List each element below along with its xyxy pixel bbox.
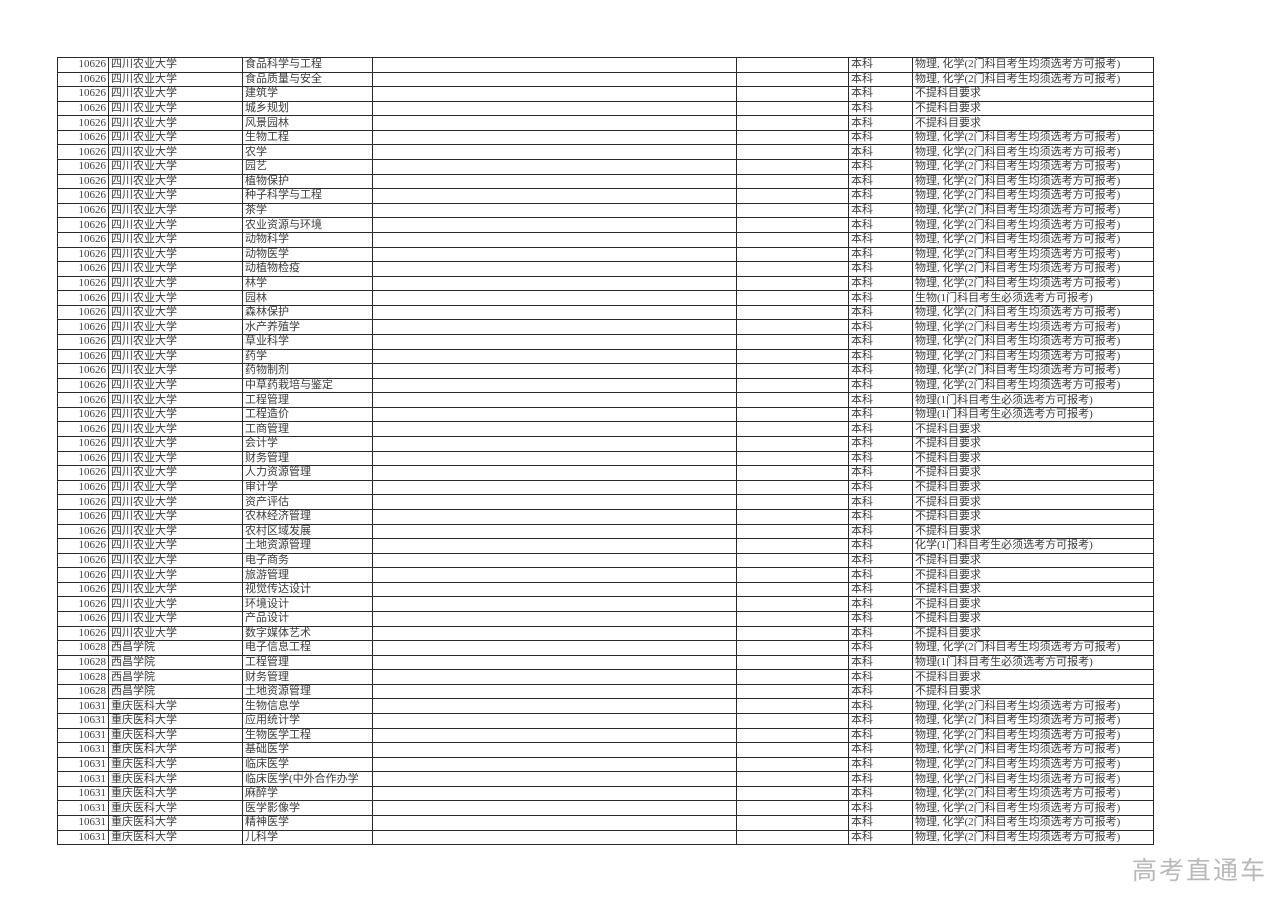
empty-cell: [373, 407, 737, 422]
university-name-cell: 四川农业大学: [109, 276, 243, 291]
education-level-cell: 本科: [849, 714, 913, 729]
university-name-cell: 四川农业大学: [109, 174, 243, 189]
school-code-cell: 10626: [58, 597, 109, 612]
subject-requirement-cell: 物理, 化学(2门科目考生均须选考方可报考): [913, 174, 1154, 189]
education-level-cell: 本科: [849, 728, 913, 743]
empty-cell: [737, 816, 849, 831]
education-level-cell: 本科: [849, 772, 913, 787]
subject-requirement-cell: 物理, 化学(2门科目考生均须选考方可报考): [913, 816, 1154, 831]
school-code-cell: 10626: [58, 72, 109, 87]
empty-cell: [737, 772, 849, 787]
table-row: 10631重庆医科大学临床医学(中外合作办学本科物理, 化学(2门科目考生均须选…: [58, 772, 1154, 787]
empty-cell: [373, 495, 737, 510]
table-row: 10626四川农业大学园林本科生物(1门科目考生必须选考方可报考): [58, 291, 1154, 306]
table-row: 10626四川农业大学财务管理本科不提科目要求: [58, 451, 1154, 466]
subject-requirement-cell: 物理, 化学(2门科目考生均须选考方可报考): [913, 830, 1154, 845]
university-name-cell: 四川农业大学: [109, 539, 243, 554]
admission-subject-requirements-table: 10626四川农业大学食品科学与工程本科物理, 化学(2门科目考生均须选考方可报…: [57, 57, 1154, 845]
major-name-cell: 临床医学(中外合作办学: [243, 772, 373, 787]
school-code-cell: 10626: [58, 495, 109, 510]
subject-requirement-cell: 物理, 化学(2门科目考生均须选考方可报考): [913, 743, 1154, 758]
empty-cell: [737, 72, 849, 87]
subject-requirement-cell: 不提科目要求: [913, 670, 1154, 685]
university-name-cell: 四川农业大学: [109, 451, 243, 466]
table-row: 10626四川农业大学工商管理本科不提科目要求: [58, 422, 1154, 437]
table-row: 10631重庆医科大学儿科学本科物理, 化学(2门科目考生均须选考方可报考): [58, 830, 1154, 845]
education-level-cell: 本科: [849, 218, 913, 233]
subject-requirement-cell: 物理, 化学(2门科目考生均须选考方可报考): [913, 189, 1154, 204]
university-name-cell: 四川农业大学: [109, 422, 243, 437]
major-name-cell: 临床医学: [243, 757, 373, 772]
university-name-cell: 西昌学院: [109, 641, 243, 656]
university-name-cell: 四川农业大学: [109, 611, 243, 626]
major-name-cell: 中草药栽培与鉴定: [243, 378, 373, 393]
university-name-cell: 四川农业大学: [109, 262, 243, 277]
table-row: 10631重庆医科大学精神医学本科物理, 化学(2门科目考生均须选考方可报考): [58, 816, 1154, 831]
major-name-cell: 人力资源管理: [243, 466, 373, 481]
empty-cell: [737, 116, 849, 131]
education-level-cell: 本科: [849, 568, 913, 583]
university-name-cell: 四川农业大学: [109, 232, 243, 247]
subject-requirement-cell: 物理, 化学(2门科目考生均须选考方可报考): [913, 262, 1154, 277]
school-code-cell: 10626: [58, 582, 109, 597]
empty-cell: [737, 466, 849, 481]
subject-requirement-cell: 不提科目要求: [913, 553, 1154, 568]
major-name-cell: 城乡规划: [243, 101, 373, 116]
table-row: 10626四川农业大学农学本科物理, 化学(2门科目考生均须选考方可报考): [58, 145, 1154, 160]
table-row: 10626四川农业大学农业资源与环境本科物理, 化学(2门科目考生均须选考方可报…: [58, 218, 1154, 233]
university-name-cell: 四川农业大学: [109, 305, 243, 320]
empty-cell: [373, 276, 737, 291]
empty-cell: [737, 801, 849, 816]
education-level-cell: 本科: [849, 364, 913, 379]
school-code-cell: 10626: [58, 116, 109, 131]
empty-cell: [737, 626, 849, 641]
empty-cell: [737, 174, 849, 189]
table-row: 10626四川农业大学旅游管理本科不提科目要求: [58, 568, 1154, 583]
university-name-cell: 四川农业大学: [109, 466, 243, 481]
university-name-cell: 重庆医科大学: [109, 772, 243, 787]
major-name-cell: 生物医学工程: [243, 728, 373, 743]
empty-cell: [737, 437, 849, 452]
major-name-cell: 基础医学: [243, 743, 373, 758]
empty-cell: [737, 670, 849, 685]
school-code-cell: 10626: [58, 247, 109, 262]
education-level-cell: 本科: [849, 305, 913, 320]
subject-requirement-cell: 不提科目要求: [913, 626, 1154, 641]
university-name-cell: 西昌学院: [109, 670, 243, 685]
empty-cell: [737, 539, 849, 554]
table-row: 10626四川农业大学城乡规划本科不提科目要求: [58, 101, 1154, 116]
empty-cell: [373, 539, 737, 554]
empty-cell: [373, 757, 737, 772]
subject-requirement-cell: 不提科目要求: [913, 597, 1154, 612]
major-name-cell: 草业科学: [243, 334, 373, 349]
major-name-cell: 动物医学: [243, 247, 373, 262]
subject-requirement-cell: 不提科目要求: [913, 582, 1154, 597]
empty-cell: [373, 160, 737, 175]
table-row: 10628西昌学院财务管理本科不提科目要求: [58, 670, 1154, 685]
document-sheet: 10626四川农业大学食品科学与工程本科物理, 化学(2门科目考生均须选考方可报…: [0, 0, 1280, 905]
subject-requirement-cell: 化学(1门科目考生必须选考方可报考): [913, 539, 1154, 554]
major-name-cell: 土地资源管理: [243, 684, 373, 699]
empty-cell: [373, 116, 737, 131]
empty-cell: [373, 684, 737, 699]
university-name-cell: 四川农业大学: [109, 189, 243, 204]
school-code-cell: 10626: [58, 378, 109, 393]
empty-cell: [373, 553, 737, 568]
major-name-cell: 审计学: [243, 480, 373, 495]
education-level-cell: 本科: [849, 378, 913, 393]
major-name-cell: 电子商务: [243, 553, 373, 568]
subject-requirement-cell: 物理, 化学(2门科目考生均须选考方可报考): [913, 72, 1154, 87]
school-code-cell: 10626: [58, 407, 109, 422]
empty-cell: [737, 582, 849, 597]
empty-cell: [373, 772, 737, 787]
school-code-cell: 10626: [58, 87, 109, 102]
table-row: 10626四川农业大学环境设计本科不提科目要求: [58, 597, 1154, 612]
table-row: 10626四川农业大学水产养殖学本科物理, 化学(2门科目考生均须选考方可报考): [58, 320, 1154, 335]
table-row: 10626四川农业大学农村区域发展本科不提科目要求: [58, 524, 1154, 539]
university-name-cell: 四川农业大学: [109, 407, 243, 422]
education-level-cell: 本科: [849, 495, 913, 510]
table-row: 10626四川农业大学数字媒体艺术本科不提科目要求: [58, 626, 1154, 641]
empty-cell: [737, 568, 849, 583]
education-level-cell: 本科: [849, 262, 913, 277]
major-name-cell: 工程造价: [243, 407, 373, 422]
major-name-cell: 建筑学: [243, 87, 373, 102]
table-row: 10626四川农业大学种子科学与工程本科物理, 化学(2门科目考生均须选考方可报…: [58, 189, 1154, 204]
empty-cell: [737, 87, 849, 102]
empty-cell: [737, 495, 849, 510]
table-row: 10626四川农业大学动植物检疫本科物理, 化学(2门科目考生均须选考方可报考): [58, 262, 1154, 277]
education-level-cell: 本科: [849, 582, 913, 597]
empty-cell: [737, 291, 849, 306]
education-level-cell: 本科: [849, 422, 913, 437]
empty-cell: [737, 611, 849, 626]
university-name-cell: 四川农业大学: [109, 597, 243, 612]
empty-cell: [373, 247, 737, 262]
empty-cell: [737, 189, 849, 204]
major-name-cell: 电子信息工程: [243, 641, 373, 656]
empty-cell: [373, 101, 737, 116]
education-level-cell: 本科: [849, 116, 913, 131]
university-name-cell: 重庆医科大学: [109, 728, 243, 743]
table-row: 10626四川农业大学资产评估本科不提科目要求: [58, 495, 1154, 510]
education-level-cell: 本科: [849, 509, 913, 524]
major-name-cell: 农业资源与环境: [243, 218, 373, 233]
empty-cell: [737, 203, 849, 218]
empty-cell: [737, 262, 849, 277]
school-code-cell: 10626: [58, 130, 109, 145]
subject-requirement-cell: 不提科目要求: [913, 87, 1154, 102]
major-name-cell: 园林: [243, 291, 373, 306]
university-name-cell: 四川农业大学: [109, 393, 243, 408]
education-level-cell: 本科: [849, 276, 913, 291]
education-level-cell: 本科: [849, 130, 913, 145]
university-name-cell: 四川农业大学: [109, 524, 243, 539]
education-level-cell: 本科: [849, 189, 913, 204]
university-name-cell: 四川农业大学: [109, 116, 243, 131]
school-code-cell: 10626: [58, 480, 109, 495]
empty-cell: [737, 276, 849, 291]
subject-requirement-cell: 不提科目要求: [913, 495, 1154, 510]
school-code-cell: 10626: [58, 101, 109, 116]
school-code-cell: 10631: [58, 801, 109, 816]
empty-cell: [737, 641, 849, 656]
empty-cell: [737, 480, 849, 495]
subject-requirement-cell: 物理, 化学(2门科目考生均须选考方可报考): [913, 160, 1154, 175]
table-row: 10626四川农业大学农林经济管理本科不提科目要求: [58, 509, 1154, 524]
school-code-cell: 10631: [58, 714, 109, 729]
education-level-cell: 本科: [849, 349, 913, 364]
table-row: 10631重庆医科大学基础医学本科物理, 化学(2门科目考生均须选考方可报考): [58, 743, 1154, 758]
empty-cell: [373, 422, 737, 437]
education-level-cell: 本科: [849, 641, 913, 656]
subject-requirement-cell: 不提科目要求: [913, 101, 1154, 116]
empty-cell: [737, 334, 849, 349]
university-name-cell: 重庆医科大学: [109, 801, 243, 816]
school-code-cell: 10631: [58, 743, 109, 758]
empty-cell: [373, 582, 737, 597]
school-code-cell: 10626: [58, 553, 109, 568]
empty-cell: [373, 743, 737, 758]
table-row: 10626四川农业大学电子商务本科不提科目要求: [58, 553, 1154, 568]
education-level-cell: 本科: [849, 407, 913, 422]
university-name-cell: 四川农业大学: [109, 130, 243, 145]
empty-cell: [737, 684, 849, 699]
school-code-cell: 10626: [58, 364, 109, 379]
major-name-cell: 工程管理: [243, 655, 373, 670]
subject-requirement-cell: 物理, 化学(2门科目考生均须选考方可报考): [913, 364, 1154, 379]
major-name-cell: 植物保护: [243, 174, 373, 189]
university-name-cell: 重庆医科大学: [109, 743, 243, 758]
university-name-cell: 四川农业大学: [109, 87, 243, 102]
university-name-cell: 四川农业大学: [109, 101, 243, 116]
university-name-cell: 重庆医科大学: [109, 816, 243, 831]
subject-requirement-cell: 物理, 化学(2门科目考生均须选考方可报考): [913, 58, 1154, 73]
education-level-cell: 本科: [849, 816, 913, 831]
major-name-cell: 药物制剂: [243, 364, 373, 379]
empty-cell: [737, 509, 849, 524]
empty-cell: [737, 305, 849, 320]
major-name-cell: 药学: [243, 349, 373, 364]
empty-cell: [373, 262, 737, 277]
major-name-cell: 动物科学: [243, 232, 373, 247]
education-level-cell: 本科: [849, 801, 913, 816]
university-name-cell: 四川农业大学: [109, 218, 243, 233]
major-name-cell: 数字媒体艺术: [243, 626, 373, 641]
table-row: 10631重庆医科大学临床医学本科物理, 化学(2门科目考生均须选考方可报考): [58, 757, 1154, 772]
education-level-cell: 本科: [849, 539, 913, 554]
major-name-cell: 农村区域发展: [243, 524, 373, 539]
subject-requirement-cell: 物理(1门科目考生必须选考方可报考): [913, 393, 1154, 408]
subject-requirement-cell: 不提科目要求: [913, 466, 1154, 481]
education-level-cell: 本科: [849, 699, 913, 714]
major-name-cell: 食品质量与安全: [243, 72, 373, 87]
table-body: 10626四川农业大学食品科学与工程本科物理, 化学(2门科目考生均须选考方可报…: [58, 58, 1154, 845]
university-name-cell: 四川农业大学: [109, 72, 243, 87]
table-row: 10626四川农业大学动物科学本科物理, 化学(2门科目考生均须选考方可报考): [58, 232, 1154, 247]
empty-cell: [373, 437, 737, 452]
education-level-cell: 本科: [849, 291, 913, 306]
school-code-cell: 10631: [58, 757, 109, 772]
empty-cell: [737, 422, 849, 437]
subject-requirement-cell: 物理, 化学(2门科目考生均须选考方可报考): [913, 349, 1154, 364]
education-level-cell: 本科: [849, 72, 913, 87]
empty-cell: [737, 407, 849, 422]
subject-requirement-cell: 物理, 化学(2门科目考生均须选考方可报考): [913, 203, 1154, 218]
university-name-cell: 四川农业大学: [109, 247, 243, 262]
table-row: 10626四川农业大学植物保护本科物理, 化学(2门科目考生均须选考方可报考): [58, 174, 1154, 189]
major-name-cell: 工商管理: [243, 422, 373, 437]
subject-requirement-cell: 不提科目要求: [913, 568, 1154, 583]
empty-cell: [737, 160, 849, 175]
empty-cell: [373, 714, 737, 729]
empty-cell: [373, 728, 737, 743]
subject-requirement-cell: 不提科目要求: [913, 480, 1154, 495]
school-code-cell: 10631: [58, 699, 109, 714]
university-name-cell: 四川农业大学: [109, 495, 243, 510]
table-row: 10626四川农业大学草业科学本科物理, 化学(2门科目考生均须选考方可报考): [58, 334, 1154, 349]
table-row: 10626四川农业大学审计学本科不提科目要求: [58, 480, 1154, 495]
subject-requirement-cell: 生物(1门科目考生必须选考方可报考): [913, 291, 1154, 306]
subject-requirement-cell: 不提科目要求: [913, 116, 1154, 131]
school-code-cell: 10631: [58, 830, 109, 845]
university-name-cell: 重庆医科大学: [109, 757, 243, 772]
subject-requirement-cell: 不提科目要求: [913, 611, 1154, 626]
school-code-cell: 10626: [58, 466, 109, 481]
empty-cell: [373, 568, 737, 583]
school-code-cell: 10628: [58, 684, 109, 699]
major-name-cell: 风景园林: [243, 116, 373, 131]
university-name-cell: 四川农业大学: [109, 582, 243, 597]
empty-cell: [373, 786, 737, 801]
school-code-cell: 10631: [58, 786, 109, 801]
table-row: 10626四川农业大学工程造价本科物理(1门科目考生必须选考方可报考): [58, 407, 1154, 422]
major-name-cell: 森林保护: [243, 305, 373, 320]
empty-cell: [737, 320, 849, 335]
university-name-cell: 四川农业大学: [109, 626, 243, 641]
school-code-cell: 10631: [58, 772, 109, 787]
empty-cell: [737, 451, 849, 466]
university-name-cell: 重庆医科大学: [109, 714, 243, 729]
table-row: 10626四川农业大学药学本科物理, 化学(2门科目考生均须选考方可报考): [58, 349, 1154, 364]
subject-requirement-cell: 不提科目要求: [913, 437, 1154, 452]
empty-cell: [373, 174, 737, 189]
table-row: 10626四川农业大学建筑学本科不提科目要求: [58, 87, 1154, 102]
empty-cell: [373, 699, 737, 714]
education-level-cell: 本科: [849, 655, 913, 670]
education-level-cell: 本科: [849, 87, 913, 102]
education-level-cell: 本科: [849, 334, 913, 349]
table-row: 10631重庆医科大学麻醉学本科物理, 化学(2门科目考生均须选考方可报考): [58, 786, 1154, 801]
school-code-cell: 10626: [58, 305, 109, 320]
education-level-cell: 本科: [849, 145, 913, 160]
empty-cell: [737, 743, 849, 758]
education-level-cell: 本科: [849, 670, 913, 685]
table-row: 10628西昌学院电子信息工程本科物理, 化学(2门科目考生均须选考方可报考): [58, 641, 1154, 656]
school-code-cell: 10626: [58, 276, 109, 291]
school-code-cell: 10626: [58, 437, 109, 452]
empty-cell: [737, 58, 849, 73]
education-level-cell: 本科: [849, 553, 913, 568]
empty-cell: [373, 655, 737, 670]
education-level-cell: 本科: [849, 101, 913, 116]
empty-cell: [373, 611, 737, 626]
school-code-cell: 10626: [58, 174, 109, 189]
empty-cell: [373, 480, 737, 495]
subject-requirement-cell: 物理, 化学(2门科目考生均须选考方可报考): [913, 801, 1154, 816]
major-name-cell: 林学: [243, 276, 373, 291]
empty-cell: [737, 714, 849, 729]
subject-requirement-cell: 物理, 化学(2门科目考生均须选考方可报考): [913, 320, 1154, 335]
major-name-cell: 工程管理: [243, 393, 373, 408]
school-code-cell: 10626: [58, 524, 109, 539]
university-name-cell: 四川农业大学: [109, 203, 243, 218]
major-name-cell: 茶学: [243, 203, 373, 218]
education-level-cell: 本科: [849, 203, 913, 218]
university-name-cell: 四川农业大学: [109, 291, 243, 306]
school-code-cell: 10626: [58, 451, 109, 466]
empty-cell: [737, 349, 849, 364]
empty-cell: [373, 830, 737, 845]
table-row: 10626四川农业大学风景园林本科不提科目要求: [58, 116, 1154, 131]
empty-cell: [373, 364, 737, 379]
subject-requirement-cell: 物理, 化学(2门科目考生均须选考方可报考): [913, 378, 1154, 393]
table-row: 10626四川农业大学动物医学本科物理, 化学(2门科目考生均须选考方可报考): [58, 247, 1154, 262]
table-row: 10628西昌学院工程管理本科物理(1门科目考生必须选考方可报考): [58, 655, 1154, 670]
university-name-cell: 西昌学院: [109, 655, 243, 670]
university-name-cell: 四川农业大学: [109, 364, 243, 379]
subject-requirement-cell: 物理, 化学(2门科目考生均须选考方可报考): [913, 218, 1154, 233]
table-row: 10626四川农业大学土地资源管理本科化学(1门科目考生必须选考方可报考): [58, 539, 1154, 554]
school-code-cell: 10628: [58, 655, 109, 670]
table-row: 10631重庆医科大学生物信息学本科物理, 化学(2门科目考生均须选考方可报考): [58, 699, 1154, 714]
major-name-cell: 动植物检疫: [243, 262, 373, 277]
empty-cell: [737, 786, 849, 801]
school-code-cell: 10626: [58, 58, 109, 73]
empty-cell: [737, 757, 849, 772]
empty-cell: [737, 553, 849, 568]
school-code-cell: 10626: [58, 611, 109, 626]
empty-cell: [737, 232, 849, 247]
empty-cell: [373, 393, 737, 408]
education-level-cell: 本科: [849, 611, 913, 626]
empty-cell: [373, 203, 737, 218]
subject-requirement-cell: 物理, 化学(2门科目考生均须选考方可报考): [913, 232, 1154, 247]
major-name-cell: 视觉传达设计: [243, 582, 373, 597]
university-name-cell: 四川农业大学: [109, 334, 243, 349]
empty-cell: [373, 334, 737, 349]
table-row: 10626四川农业大学森林保护本科物理, 化学(2门科目考生均须选考方可报考): [58, 305, 1154, 320]
subject-requirement-cell: 不提科目要求: [913, 684, 1154, 699]
empty-cell: [373, 189, 737, 204]
empty-cell: [737, 655, 849, 670]
education-level-cell: 本科: [849, 757, 913, 772]
school-code-cell: 10626: [58, 232, 109, 247]
table-row: 10626四川农业大学林学本科物理, 化学(2门科目考生均须选考方可报考): [58, 276, 1154, 291]
education-level-cell: 本科: [849, 524, 913, 539]
empty-cell: [373, 87, 737, 102]
major-name-cell: 会计学: [243, 437, 373, 452]
school-code-cell: 10631: [58, 728, 109, 743]
empty-cell: [373, 641, 737, 656]
university-name-cell: 四川农业大学: [109, 378, 243, 393]
subject-requirement-cell: 物理(1门科目考生必须选考方可报考): [913, 407, 1154, 422]
major-name-cell: 水产养殖学: [243, 320, 373, 335]
empty-cell: [737, 378, 849, 393]
